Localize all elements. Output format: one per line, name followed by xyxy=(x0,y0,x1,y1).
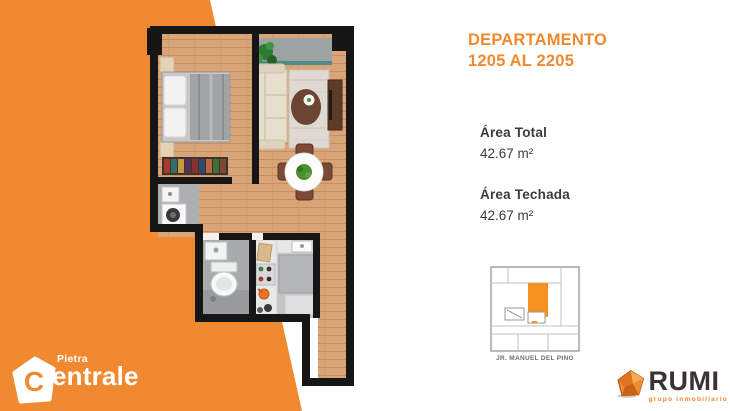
pillow xyxy=(164,108,186,137)
spec-label: Área Total xyxy=(480,125,660,140)
bathroom-top-wall xyxy=(219,233,252,240)
key-plan-map xyxy=(488,266,582,352)
stove xyxy=(256,264,275,285)
centrale-word: entrale xyxy=(52,361,139,392)
rumi-tagline: grupo inmobiliario xyxy=(649,396,728,403)
street-label: JR. MANUEL DEL PINO xyxy=(488,355,582,362)
kitchen-top-wall xyxy=(263,233,313,240)
bedroom-door-gap xyxy=(232,177,252,184)
tv-console xyxy=(328,80,342,130)
bath-kitchen-wall xyxy=(249,240,256,318)
spec-area-techada: Área Techada 42.67 m² xyxy=(480,187,660,223)
bed xyxy=(162,72,230,142)
nightstand xyxy=(160,57,174,72)
bedroom-living-wall xyxy=(252,34,259,184)
centerpiece-plant xyxy=(296,164,312,180)
heading-line-2: 1205 AL 2205 xyxy=(468,51,688,72)
wall-notch-top-right xyxy=(332,34,347,51)
bedroom-furniture xyxy=(160,57,230,175)
washing-machine xyxy=(162,204,186,226)
pentagon-c-icon: C xyxy=(12,356,56,404)
bathroom-door-gap xyxy=(203,233,219,240)
hallway-floor xyxy=(318,237,346,378)
heading-line-1: DEPARTAMENTO xyxy=(468,30,688,51)
flyer-page: DEPARTAMENTO 1205 AL 2205 Área Total 42.… xyxy=(0,0,730,411)
kitchen-fixtures xyxy=(255,240,318,318)
shower-drain xyxy=(210,296,216,302)
kitchen-door-gap xyxy=(252,233,263,240)
nightstand xyxy=(160,142,174,157)
bedroom-bottom-wall xyxy=(158,177,232,184)
kitchen-counter-bottom xyxy=(285,295,316,315)
corridor-floor xyxy=(199,180,262,241)
wall-notch-top-left xyxy=(147,28,162,55)
kitchen-hallway-wall xyxy=(313,233,320,318)
spec-area-total: Área Total 42.67 m² xyxy=(480,125,660,161)
coffee-table xyxy=(291,89,321,125)
pillow xyxy=(164,76,186,105)
spec-label: Área Techada xyxy=(480,187,660,202)
toilet xyxy=(211,262,237,296)
apartment-heading: DEPARTAMENTO 1205 AL 2205 xyxy=(468,30,688,72)
rumi-wordmark: RUMI xyxy=(649,368,720,395)
rumi-logo: RUMI grupo inmobiliario xyxy=(616,360,728,408)
gem-icon xyxy=(616,362,646,406)
sofa xyxy=(257,64,287,149)
refrigerator xyxy=(279,255,314,293)
bookshelf xyxy=(162,157,228,175)
monogram-letter: C xyxy=(24,366,44,397)
spec-value: 42.67 m² xyxy=(480,208,660,223)
spec-value: 42.67 m² xyxy=(480,146,660,161)
pietra-centrale-logo: C Pietra entrale xyxy=(12,351,152,405)
cutting-board xyxy=(257,243,272,262)
key-plan: JR. MANUEL DEL PINO xyxy=(488,266,582,362)
